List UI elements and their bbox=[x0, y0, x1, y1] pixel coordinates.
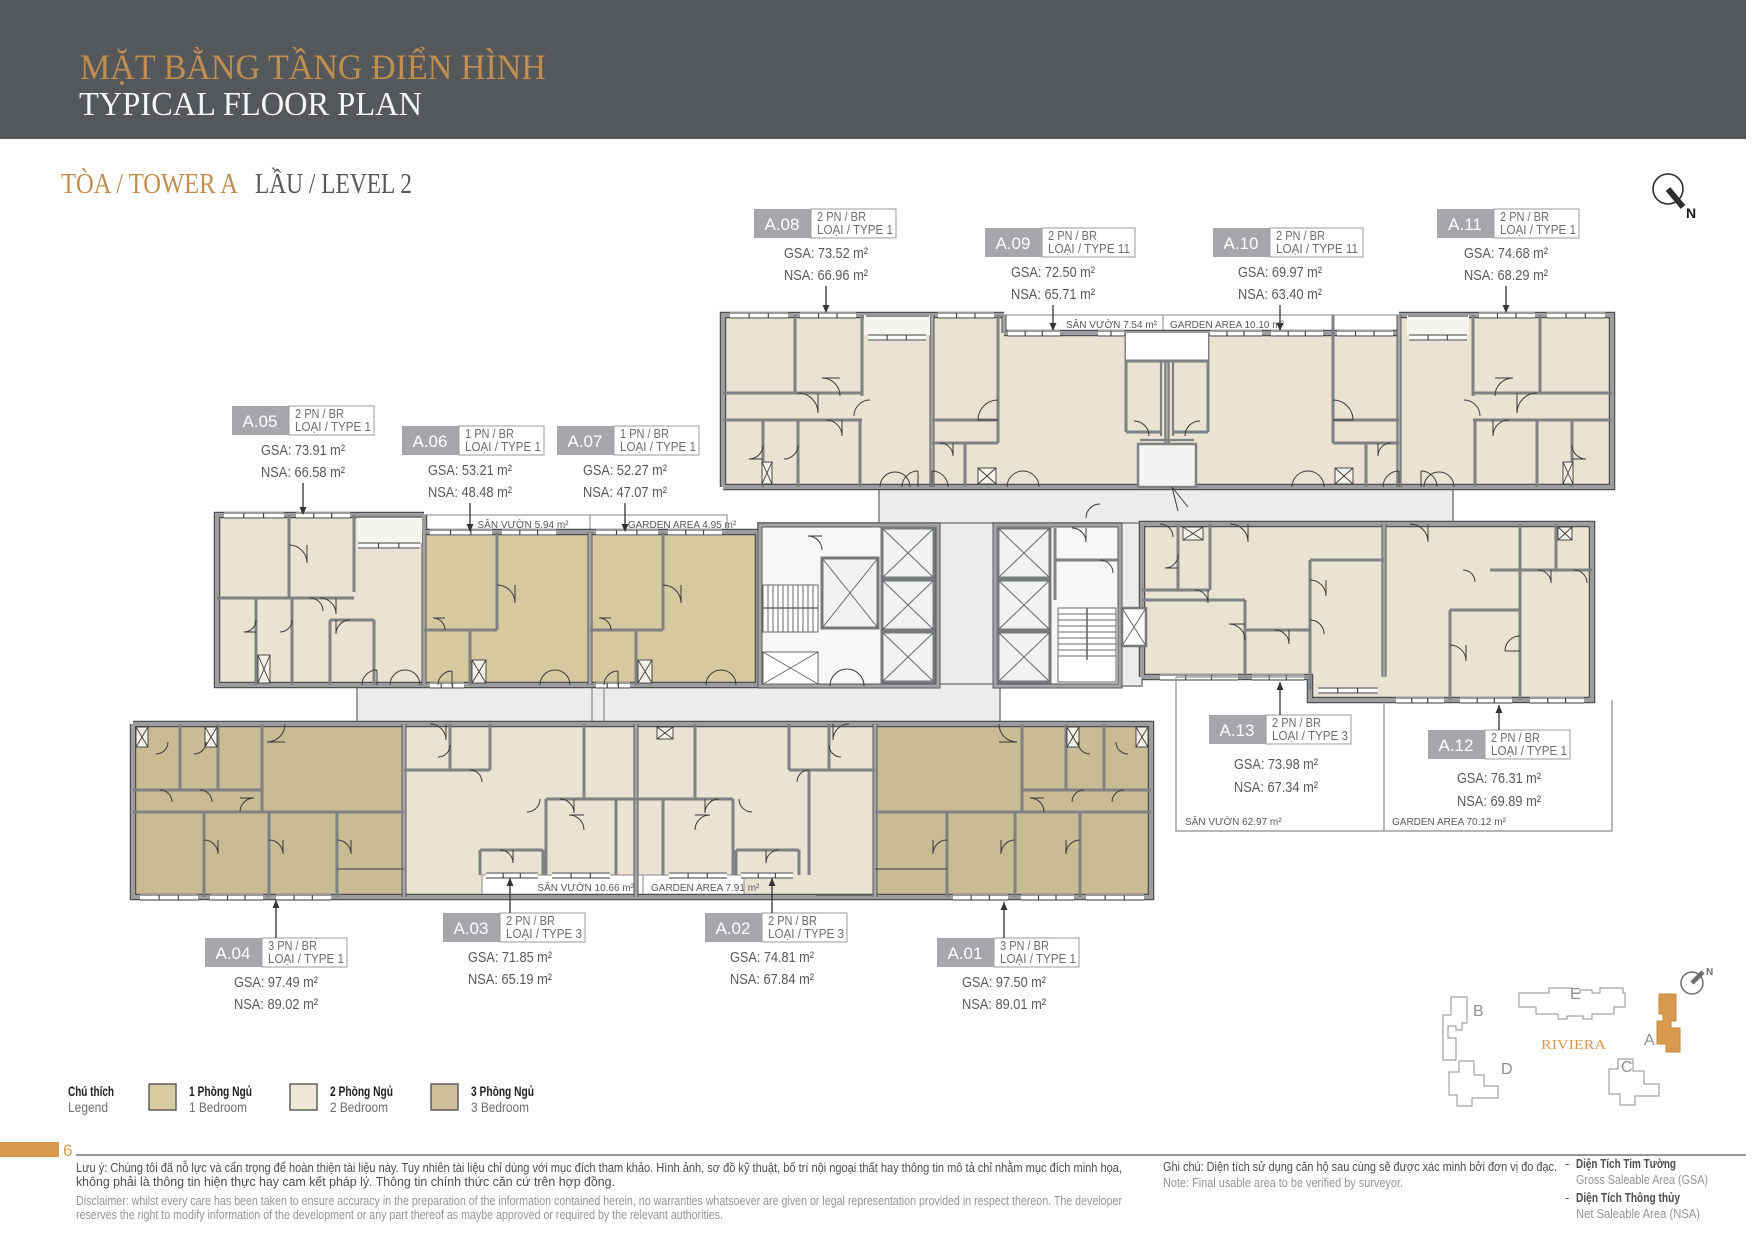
svg-text:GSA: 69.97 m²: GSA: 69.97 m² bbox=[1238, 264, 1322, 281]
svg-text:Lưu ý: Chúng tôi đã nỗ lực và: Lưu ý: Chúng tôi đã nỗ lực và cẩn trọng … bbox=[76, 1160, 1122, 1175]
svg-text:-: - bbox=[1565, 1156, 1569, 1171]
svg-text:LOẠI / TYPE 1: LOẠI / TYPE 1 bbox=[465, 440, 541, 454]
svg-text:Net Saleable Area (NSA): Net Saleable Area (NSA) bbox=[1576, 1206, 1700, 1221]
svg-text:C: C bbox=[1621, 1059, 1633, 1076]
svg-text:NSA: 67.34 m²: NSA: 67.34 m² bbox=[1234, 779, 1318, 796]
svg-text:A.06: A.06 bbox=[413, 432, 448, 451]
svg-text:1 PN / BR: 1 PN / BR bbox=[620, 427, 669, 441]
svg-text:NSA: 68.29 m²: NSA: 68.29 m² bbox=[1464, 267, 1548, 284]
svg-text:GSA: 52.27 m²: GSA: 52.27 m² bbox=[583, 462, 667, 479]
svg-text:TYPICAL FLOOR PLAN: TYPICAL FLOOR PLAN bbox=[79, 86, 422, 123]
svg-text:GARDEN AREA 70.12 m²: GARDEN AREA 70.12 m² bbox=[1392, 817, 1507, 828]
svg-text:không phải là thông tin hiện t: không phải là thông tin hiện thực hay ca… bbox=[76, 1174, 615, 1189]
svg-text:2 Bedroom: 2 Bedroom bbox=[330, 1100, 388, 1115]
svg-text:GSA: 71.85 m²: GSA: 71.85 m² bbox=[468, 949, 552, 966]
svg-text:NSA: 66.58 m²: NSA: 66.58 m² bbox=[261, 464, 345, 481]
svg-text:LOẠI / TYPE 1: LOẠI / TYPE 1 bbox=[295, 420, 371, 434]
svg-text:LOẠI / TYPE 11: LOẠI / TYPE 11 bbox=[1048, 242, 1130, 256]
svg-text:NSA: 47.07 m²: NSA: 47.07 m² bbox=[583, 484, 667, 501]
svg-text:A.10: A.10 bbox=[1224, 234, 1259, 253]
svg-text:2 PN / BR: 2 PN / BR bbox=[1500, 210, 1549, 224]
svg-text:A.01: A.01 bbox=[948, 944, 983, 963]
svg-text:LOẠI / TYPE 1: LOẠI / TYPE 1 bbox=[1000, 952, 1076, 966]
svg-text:LOẠI / TYPE 1: LOẠI / TYPE 1 bbox=[268, 952, 344, 966]
svg-text:GSA: 72.50 m²: GSA: 72.50 m² bbox=[1011, 264, 1095, 281]
svg-text:Disclaimer: whilst every care: Disclaimer: whilst every care has been t… bbox=[76, 1193, 1123, 1208]
svg-text:N: N bbox=[1706, 967, 1713, 978]
svg-text:NSA: 65.19 m²: NSA: 65.19 m² bbox=[468, 971, 552, 988]
svg-text:3 PN / BR: 3 PN / BR bbox=[268, 939, 317, 953]
svg-text:GSA: 53.21 m²: GSA: 53.21 m² bbox=[428, 462, 512, 479]
svg-text:A.12: A.12 bbox=[1439, 736, 1474, 755]
svg-text:2 PN / BR: 2 PN / BR bbox=[1276, 229, 1325, 243]
svg-text:1 PN / BR: 1 PN / BR bbox=[465, 427, 514, 441]
svg-text:6: 6 bbox=[63, 1141, 72, 1160]
svg-text:2 Phòng Ngủ: 2 Phòng Ngủ bbox=[330, 1084, 393, 1099]
svg-text:B: B bbox=[1473, 1003, 1484, 1020]
svg-text:A: A bbox=[1644, 1032, 1655, 1049]
svg-text:LOẠI / TYPE 1: LOẠI / TYPE 1 bbox=[1500, 223, 1576, 237]
svg-text:GSA: 73.91 m²: GSA: 73.91 m² bbox=[261, 442, 345, 459]
svg-text:A.13: A.13 bbox=[1220, 721, 1255, 740]
svg-text:2 PN / BR: 2 PN / BR bbox=[506, 914, 555, 928]
svg-text:1 Phòng Ngủ: 1 Phòng Ngủ bbox=[189, 1084, 252, 1099]
svg-text:-: - bbox=[1565, 1190, 1569, 1205]
svg-text:SÂN VƯỜN 62.97 m²: SÂN VƯỜN 62.97 m² bbox=[1185, 815, 1282, 828]
svg-text:LOẠI / TYPE 3: LOẠI / TYPE 3 bbox=[1272, 729, 1348, 743]
svg-text:GARDEN AREA 10.10 m²: GARDEN AREA 10.10 m² bbox=[1170, 320, 1285, 331]
svg-text:NSA: 89.01 m²: NSA: 89.01 m² bbox=[962, 996, 1046, 1013]
svg-text:Diện Tích Thông thủy: Diện Tích Thông thủy bbox=[1576, 1190, 1681, 1205]
svg-text:A.09: A.09 bbox=[996, 234, 1031, 253]
svg-text:A.03: A.03 bbox=[454, 919, 489, 938]
svg-text:2 PN / BR: 2 PN / BR bbox=[817, 210, 866, 224]
svg-text:1 Bedroom: 1 Bedroom bbox=[189, 1100, 247, 1115]
svg-text:A.04: A.04 bbox=[216, 944, 251, 963]
svg-text:NSA: 66.96 m²: NSA: 66.96 m² bbox=[784, 267, 868, 284]
svg-text:A.08: A.08 bbox=[765, 215, 800, 234]
svg-text:3 PN / BR: 3 PN / BR bbox=[1000, 939, 1049, 953]
svg-text:NSA: 67.84 m²: NSA: 67.84 m² bbox=[730, 971, 814, 988]
svg-text:NSA: 65.71 m²: NSA: 65.71 m² bbox=[1011, 286, 1095, 303]
svg-text:RIVIERA: RIVIERA bbox=[1541, 1037, 1606, 1052]
svg-text:GSA: 76.31 m²: GSA: 76.31 m² bbox=[1457, 770, 1541, 787]
svg-text:SÂN VƯỜN 7.54 m²: SÂN VƯỜN 7.54 m² bbox=[1066, 318, 1158, 331]
svg-text:TÒA / TOWER A: TÒA / TOWER A bbox=[61, 169, 239, 200]
svg-text:MẶT BẰNG TẦNG ĐIỂN HÌNH: MẶT BẰNG TẦNG ĐIỂN HÌNH bbox=[80, 47, 546, 87]
svg-text:LOẠI / TYPE 3: LOẠI / TYPE 3 bbox=[506, 927, 582, 941]
svg-text:GSA: 74.81 m²: GSA: 74.81 m² bbox=[730, 949, 814, 966]
svg-text:NSA: 89.02 m²: NSA: 89.02 m² bbox=[234, 996, 318, 1013]
svg-text:N: N bbox=[1686, 205, 1696, 221]
svg-text:SÂN VƯỜN 10.66 m²: SÂN VƯỜN 10.66 m² bbox=[537, 881, 634, 894]
svg-text:LOẠI / TYPE 11: LOẠI / TYPE 11 bbox=[1276, 242, 1358, 256]
svg-text:2 PN / BR: 2 PN / BR bbox=[768, 914, 817, 928]
svg-text:E: E bbox=[1570, 986, 1581, 1003]
svg-text:2 PN / BR: 2 PN / BR bbox=[295, 407, 344, 421]
svg-text:Legend: Legend bbox=[68, 1100, 108, 1115]
svg-text:GARDEN AREA 7.91 m²: GARDEN AREA 7.91 m² bbox=[651, 883, 760, 894]
svg-text:LOẠI / TYPE 1: LOẠI / TYPE 1 bbox=[1491, 744, 1567, 758]
svg-text:Gross Saleable Area (GSA): Gross Saleable Area (GSA) bbox=[1576, 1172, 1708, 1187]
svg-text:GSA: 97.50 m²: GSA: 97.50 m² bbox=[962, 974, 1046, 991]
svg-text:3 Bedroom: 3 Bedroom bbox=[471, 1100, 529, 1115]
svg-text:3 Phòng Ngủ: 3 Phòng Ngủ bbox=[471, 1084, 534, 1099]
svg-text:reserves the right to modify i: reserves the right to modify information… bbox=[76, 1207, 723, 1222]
svg-text:A.05: A.05 bbox=[243, 412, 278, 431]
svg-text:A.02: A.02 bbox=[716, 919, 751, 938]
svg-text:2 PN / BR: 2 PN / BR bbox=[1048, 229, 1097, 243]
svg-text:2 PN / BR: 2 PN / BR bbox=[1272, 716, 1321, 730]
svg-text:LOẠI / TYPE 1: LOẠI / TYPE 1 bbox=[620, 440, 696, 454]
svg-text:GSA: 97.49 m²: GSA: 97.49 m² bbox=[234, 974, 318, 991]
svg-text:NSA: 69.89 m²: NSA: 69.89 m² bbox=[1457, 793, 1541, 810]
svg-text:A.11: A.11 bbox=[1448, 215, 1482, 234]
svg-text:GSA: 73.98 m²: GSA: 73.98 m² bbox=[1234, 756, 1318, 773]
svg-text:Diện Tích Tim Tường: Diện Tích Tim Tường bbox=[1576, 1156, 1676, 1171]
svg-text:Ghi chú: Diện tích sử dụng căn: Ghi chú: Diện tích sử dụng căn hộ sau cù… bbox=[1163, 1159, 1557, 1174]
svg-text:D: D bbox=[1501, 1061, 1513, 1078]
svg-text:Note: Final usable area to be: Note: Final usable area to be verified b… bbox=[1163, 1175, 1403, 1190]
svg-text:LOẠI / TYPE 3: LOẠI / TYPE 3 bbox=[768, 927, 844, 941]
svg-text:GSA: 74.68 m²: GSA: 74.68 m² bbox=[1464, 245, 1548, 262]
svg-text:LOẠI / TYPE 1: LOẠI / TYPE 1 bbox=[817, 223, 893, 237]
svg-text:2 PN / BR: 2 PN / BR bbox=[1491, 731, 1540, 745]
svg-text:NSA: 63.40 m²: NSA: 63.40 m² bbox=[1238, 286, 1322, 303]
svg-text:Chú thích: Chú thích bbox=[68, 1084, 114, 1099]
svg-text:LẦU / LEVEL 2: LẦU / LEVEL 2 bbox=[255, 168, 412, 200]
svg-text:GSA: 73.52 m²: GSA: 73.52 m² bbox=[784, 245, 868, 262]
svg-text:A.07: A.07 bbox=[568, 432, 603, 451]
svg-text:NSA: 48.48 m²: NSA: 48.48 m² bbox=[428, 484, 512, 501]
